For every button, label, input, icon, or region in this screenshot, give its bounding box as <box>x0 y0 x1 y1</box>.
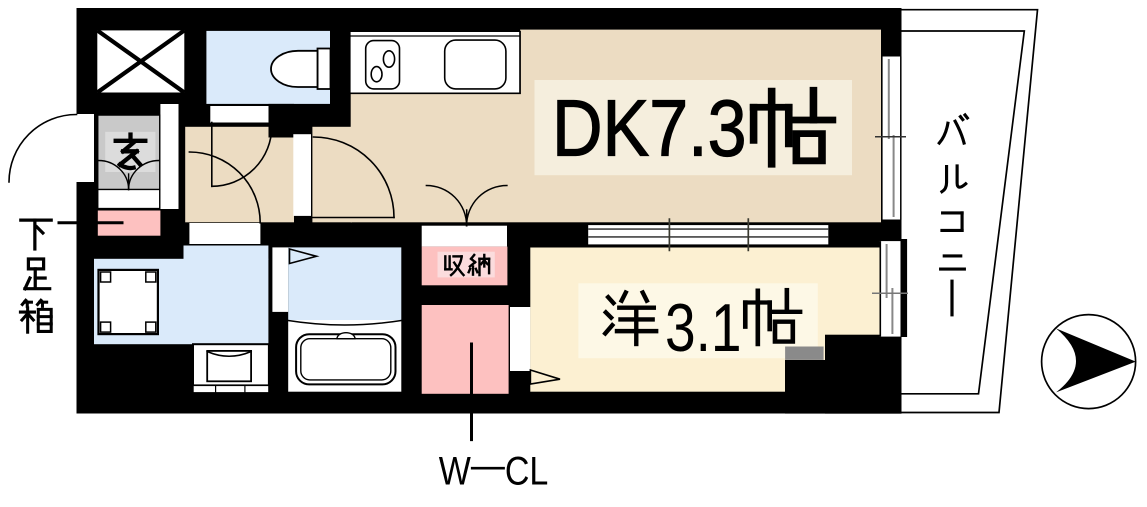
svg-text:3.1: 3.1 <box>665 291 742 367</box>
svg-text:W—CL: W—CL <box>439 442 549 493</box>
svg-text:DK7.3: DK7.3 <box>552 83 747 172</box>
